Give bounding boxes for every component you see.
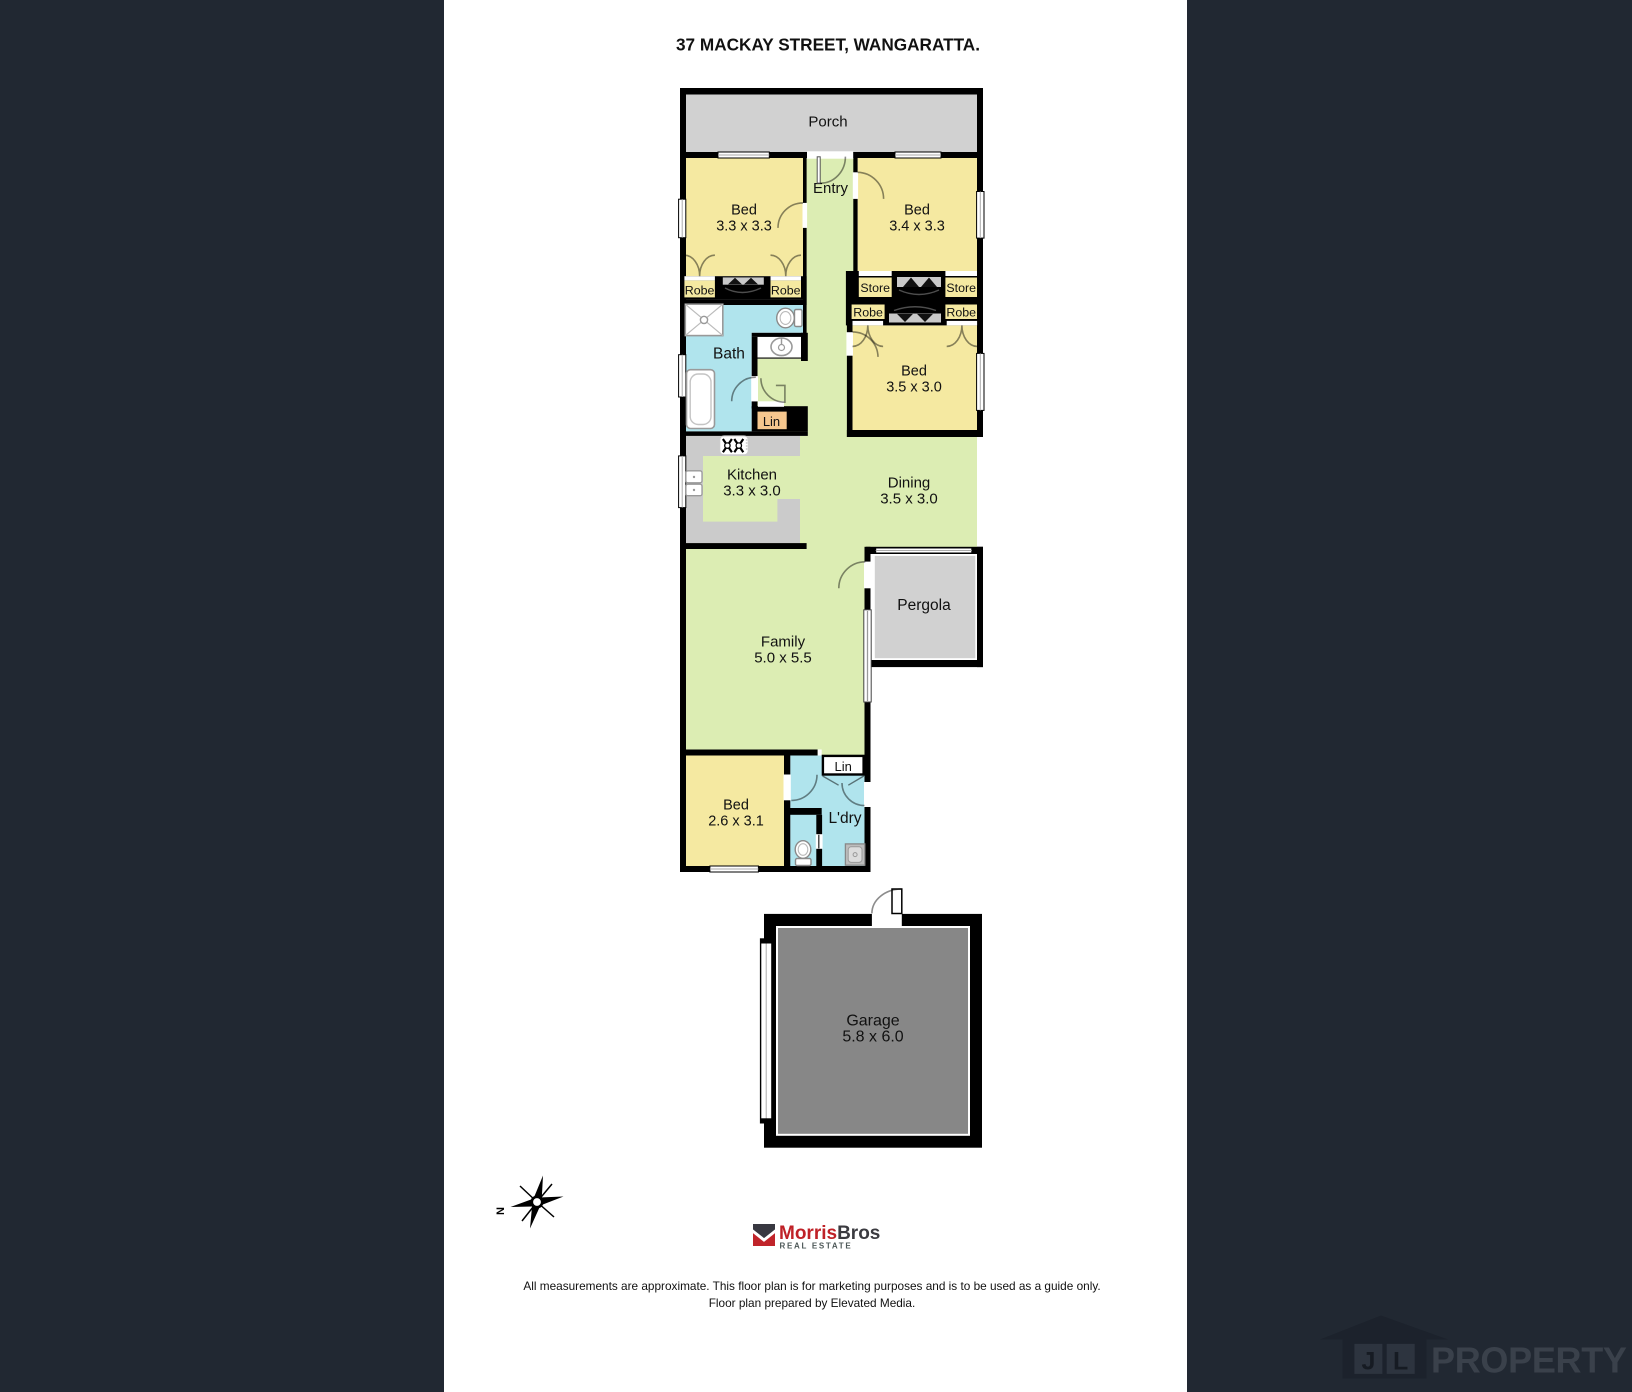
svg-text:Robe: Robe <box>685 284 715 298</box>
svg-text:3.5 x 3.0: 3.5 x 3.0 <box>886 380 942 396</box>
svg-text:Robe: Robe <box>946 306 976 320</box>
svg-text:Store: Store <box>946 281 976 295</box>
svg-text:REAL ESTATE: REAL ESTATE <box>780 1242 853 1251</box>
svg-text:Bed: Bed <box>731 203 757 219</box>
svg-text:Pergola: Pergola <box>897 597 951 614</box>
svg-text:Robe: Robe <box>853 306 883 320</box>
svg-text:Family: Family <box>761 634 806 651</box>
svg-text:3.5 x 3.0: 3.5 x 3.0 <box>880 491 938 508</box>
svg-text:L: L <box>1393 1348 1408 1376</box>
svg-text:3.3 x 3.0: 3.3 x 3.0 <box>723 483 781 500</box>
svg-text:2.6 x 3.1: 2.6 x 3.1 <box>708 814 764 830</box>
svg-text:J: J <box>1361 1348 1375 1376</box>
svg-text:Bath: Bath <box>713 346 745 363</box>
svg-text:Floor plan prepared by Elevate: Floor plan prepared by Elevated Media. <box>709 1296 916 1310</box>
svg-text:5.0 x 5.5: 5.0 x 5.5 <box>754 650 812 667</box>
svg-text:Lin: Lin <box>835 759 852 774</box>
svg-text:Robe: Robe <box>771 284 801 298</box>
svg-text:3.4 x 3.3: 3.4 x 3.3 <box>889 219 945 235</box>
svg-text:Porch: Porch <box>808 114 847 131</box>
svg-text:Lin: Lin <box>763 414 780 429</box>
svg-text:3.3 x 3.3: 3.3 x 3.3 <box>716 219 772 235</box>
svg-text:37 MACKAY STREET, WANGARATTA.: 37 MACKAY STREET, WANGARATTA. <box>676 35 980 55</box>
svg-text:PROPERTY: PROPERTY <box>1431 1340 1627 1381</box>
svg-text:Garage: Garage <box>846 1013 899 1030</box>
svg-text:All measurements are approxima: All measurements are approximate. This f… <box>523 1279 1100 1293</box>
svg-text:Bed: Bed <box>901 364 927 380</box>
svg-text:Bed: Bed <box>723 798 749 814</box>
svg-text:Store: Store <box>860 281 890 295</box>
svg-text:Bed: Bed <box>904 203 930 219</box>
svg-text:Kitchen: Kitchen <box>727 467 777 484</box>
svg-text:L'dry: L'dry <box>828 810 861 827</box>
svg-text:5.8 x 6.0: 5.8 x 6.0 <box>842 1029 903 1046</box>
svg-text:Dining: Dining <box>888 475 931 492</box>
svg-text:N: N <box>495 1207 507 1215</box>
